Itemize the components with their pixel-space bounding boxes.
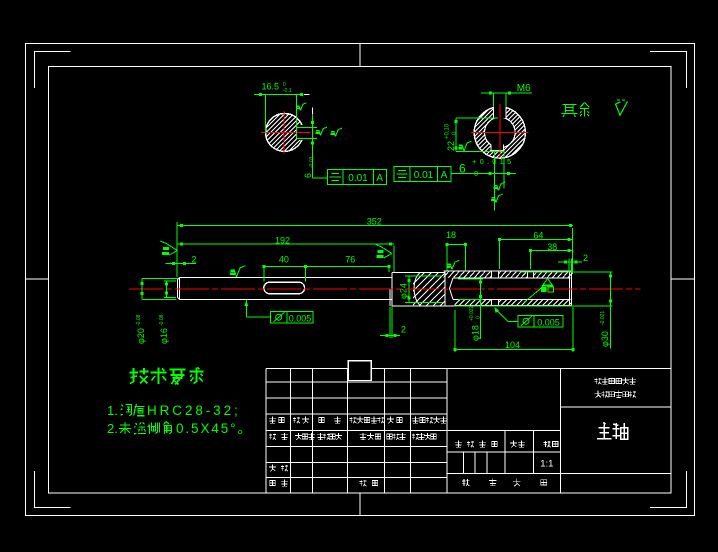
svg-text:φ18: φ18 <box>471 325 481 341</box>
svg-text:0.005: 0.005 <box>289 314 312 324</box>
svg-text:-0.1: -0.1 <box>283 88 292 94</box>
svg-text:+0.022: +0.022 <box>469 305 475 321</box>
svg-text:A: A <box>376 173 383 184</box>
svg-text:2: 2 <box>192 254 197 264</box>
svg-text:0.5X45°。: 0.5X45°。 <box>176 421 253 436</box>
svg-text:0.01: 0.01 <box>414 170 434 181</box>
svg-text:φ24: φ24 <box>399 283 409 299</box>
svg-text:1:1: 1:1 <box>540 459 553 470</box>
svg-text:22: 22 <box>446 141 456 151</box>
svg-text:40: 40 <box>279 255 289 265</box>
svg-text:18: 18 <box>446 230 456 240</box>
svg-text:6: 6 <box>459 162 466 176</box>
svg-text:φ20: φ20 <box>136 328 146 344</box>
svg-text:2: 2 <box>583 253 588 263</box>
svg-text:0.01: 0.01 <box>348 173 368 184</box>
svg-text:0: 0 <box>476 316 482 319</box>
svg-text:-0.08: -0.08 <box>159 314 165 326</box>
svg-text:0.005: 0.005 <box>537 318 560 328</box>
svg-text:φ16: φ16 <box>159 328 169 344</box>
svg-text:φ30: φ30 <box>600 331 610 347</box>
svg-text:2: 2 <box>401 325 406 335</box>
svg-text:16.5: 16.5 <box>262 82 280 92</box>
svg-text:A: A <box>441 170 448 181</box>
svg-text:2.: 2. <box>107 421 118 436</box>
svg-text:0: 0 <box>474 169 478 178</box>
svg-text:M6: M6 <box>517 83 531 94</box>
svg-text:104: 104 <box>505 340 520 350</box>
svg-text:-0.08: -0.08 <box>136 314 142 326</box>
svg-text:HRC28-32;: HRC28-32; <box>147 403 241 418</box>
svg-text:-0.03: -0.03 <box>309 156 315 168</box>
svg-text:76: 76 <box>345 255 355 265</box>
svg-text:+0.10: +0.10 <box>445 123 451 139</box>
svg-text:1.: 1. <box>107 403 118 418</box>
svg-text:+0.015: +0.015 <box>472 157 514 166</box>
svg-text:-0.021: -0.021 <box>600 311 606 325</box>
svg-text:6: 6 <box>303 173 313 178</box>
